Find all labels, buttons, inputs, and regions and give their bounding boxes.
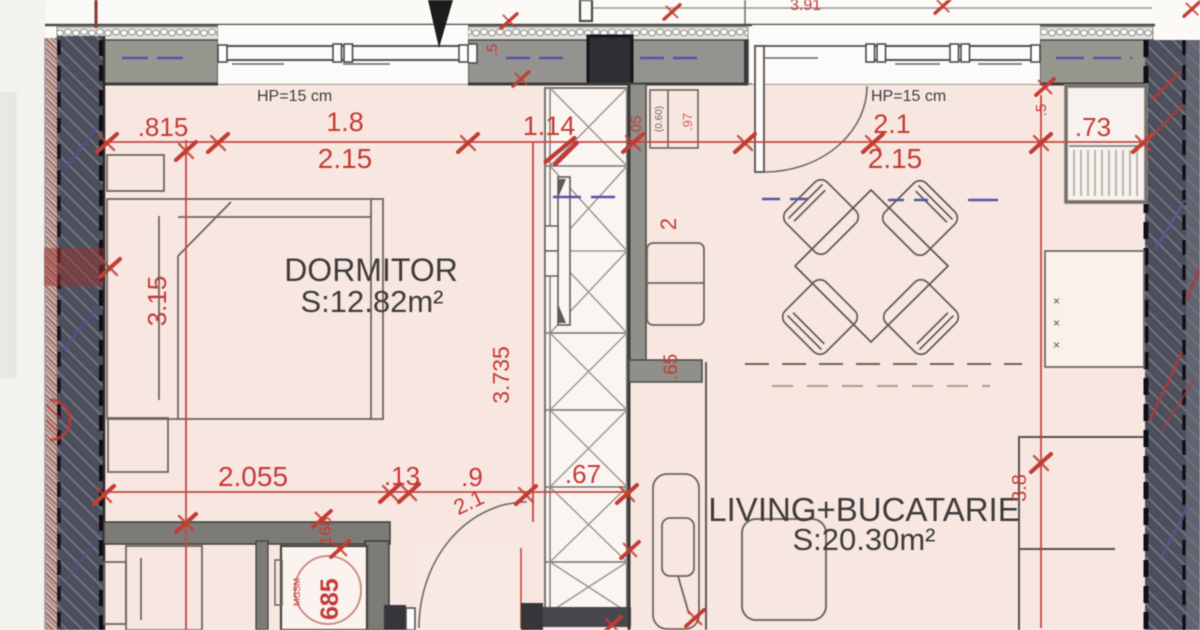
svg-text:685: 685 (316, 578, 344, 620)
svg-text:×: × (1053, 338, 1060, 352)
svg-text:×: × (1053, 294, 1060, 308)
svg-text:HP=15 cm: HP=15 cm (257, 88, 332, 105)
svg-text:1.14: 1.14 (523, 111, 576, 141)
svg-text:.97: .97 (680, 113, 695, 131)
svg-text:.815: .815 (138, 112, 189, 142)
svg-text:2.15: 2.15 (318, 143, 373, 174)
svg-text:×: × (1053, 316, 1060, 330)
svg-text:3.91: 3.91 (790, 0, 821, 14)
svg-text:S:20.30m²: S:20.30m² (792, 522, 935, 557)
svg-text:S:12.82m²: S:12.82m² (300, 284, 443, 319)
svg-text:165: 165 (316, 517, 335, 545)
svg-text:(0.60): (0.60) (654, 106, 665, 132)
svg-text:.5: .5 (484, 44, 501, 57)
svg-text:.13: .13 (384, 461, 420, 491)
svg-text:.65: .65 (661, 354, 682, 380)
svg-text:.05: .05 (628, 116, 645, 137)
svg-text:3.15: 3.15 (142, 276, 172, 327)
svg-text:MGSM: MGSM (292, 578, 302, 606)
svg-text:.5: .5 (1033, 104, 1050, 117)
svg-text:.73: .73 (1075, 112, 1111, 142)
svg-text:.67: .67 (565, 459, 601, 489)
svg-text:2.055: 2.055 (218, 461, 288, 492)
svg-text:HP=15 cm: HP=15 cm (871, 88, 946, 105)
svg-text:2: 2 (656, 218, 681, 230)
svg-text:3.735: 3.735 (488, 346, 514, 404)
svg-text:1.8: 1.8 (326, 107, 364, 137)
svg-text:2.15: 2.15 (868, 143, 923, 174)
svg-text:3.8: 3.8 (1009, 474, 1031, 502)
svg-text:2.1: 2.1 (873, 109, 911, 139)
svg-text:DORMITOR: DORMITOR (284, 252, 458, 288)
